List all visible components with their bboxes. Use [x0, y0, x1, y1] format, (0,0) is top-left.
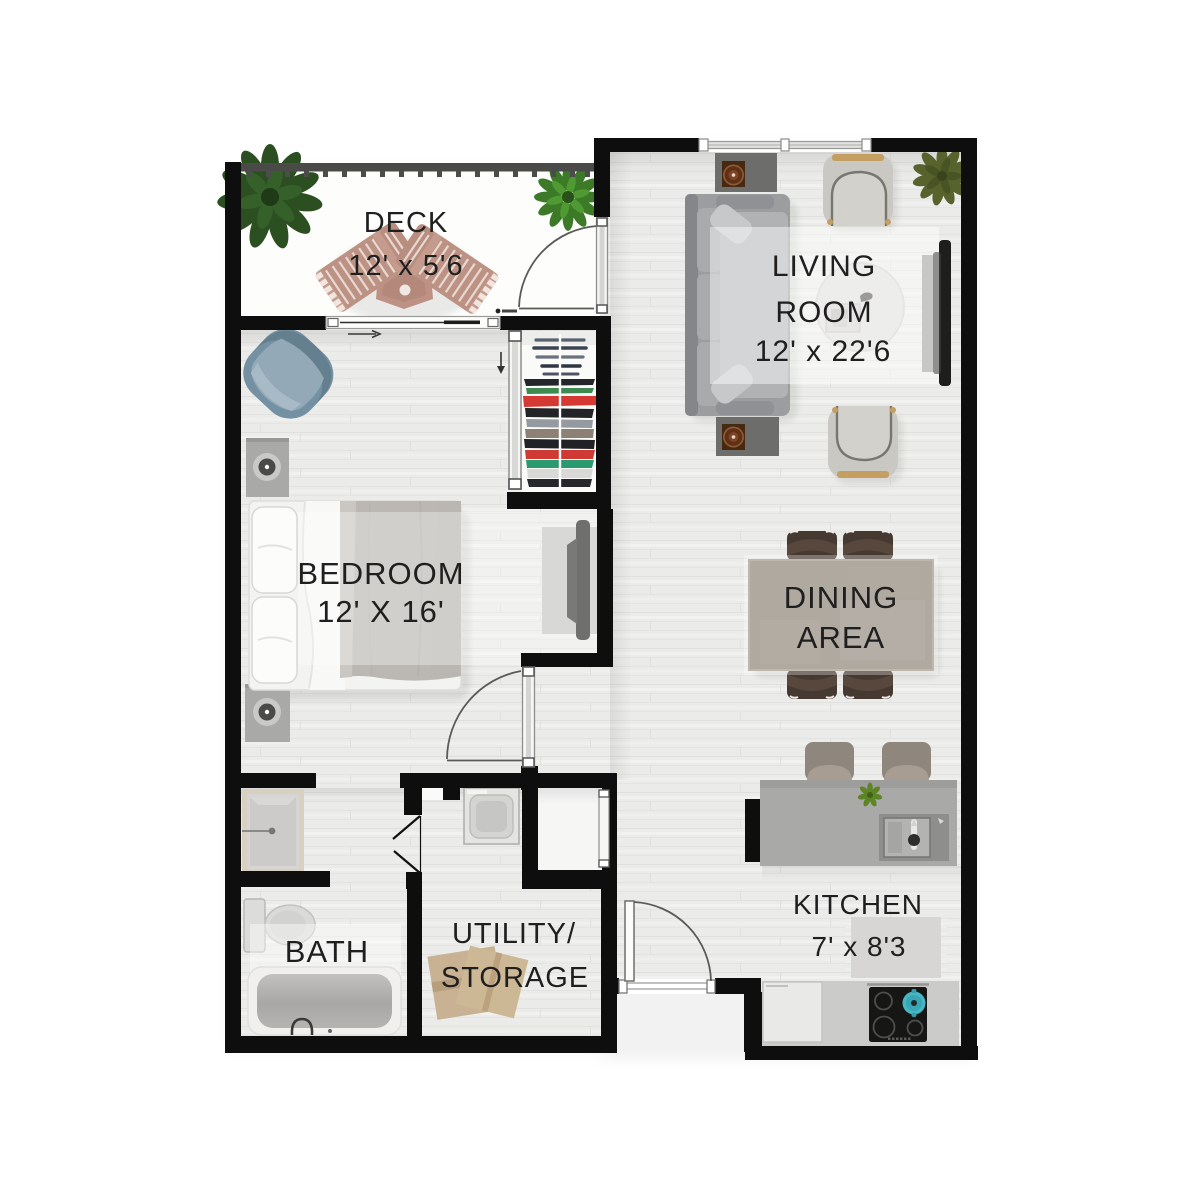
svg-text:STORAGE: STORAGE — [441, 962, 589, 994]
svg-text:12' X 16': 12' X 16' — [317, 594, 445, 629]
svg-text:UTILITY/: UTILITY/ — [452, 918, 576, 950]
svg-text:DINING: DINING — [784, 580, 899, 615]
svg-text:12' x 5'6: 12' x 5'6 — [348, 250, 463, 282]
svg-text:LIVING: LIVING — [772, 250, 876, 283]
svg-text:BATH: BATH — [285, 934, 369, 969]
svg-text:12' x 22'6: 12' x 22'6 — [755, 335, 892, 368]
svg-text:DECK: DECK — [364, 207, 449, 239]
svg-text:AREA: AREA — [797, 620, 885, 655]
svg-text:ROOM: ROOM — [775, 296, 872, 329]
svg-text:BEDROOM: BEDROOM — [297, 556, 464, 591]
svg-text:7' x 8'3: 7' x 8'3 — [812, 931, 907, 962]
svg-text:KITCHEN: KITCHEN — [793, 889, 923, 920]
